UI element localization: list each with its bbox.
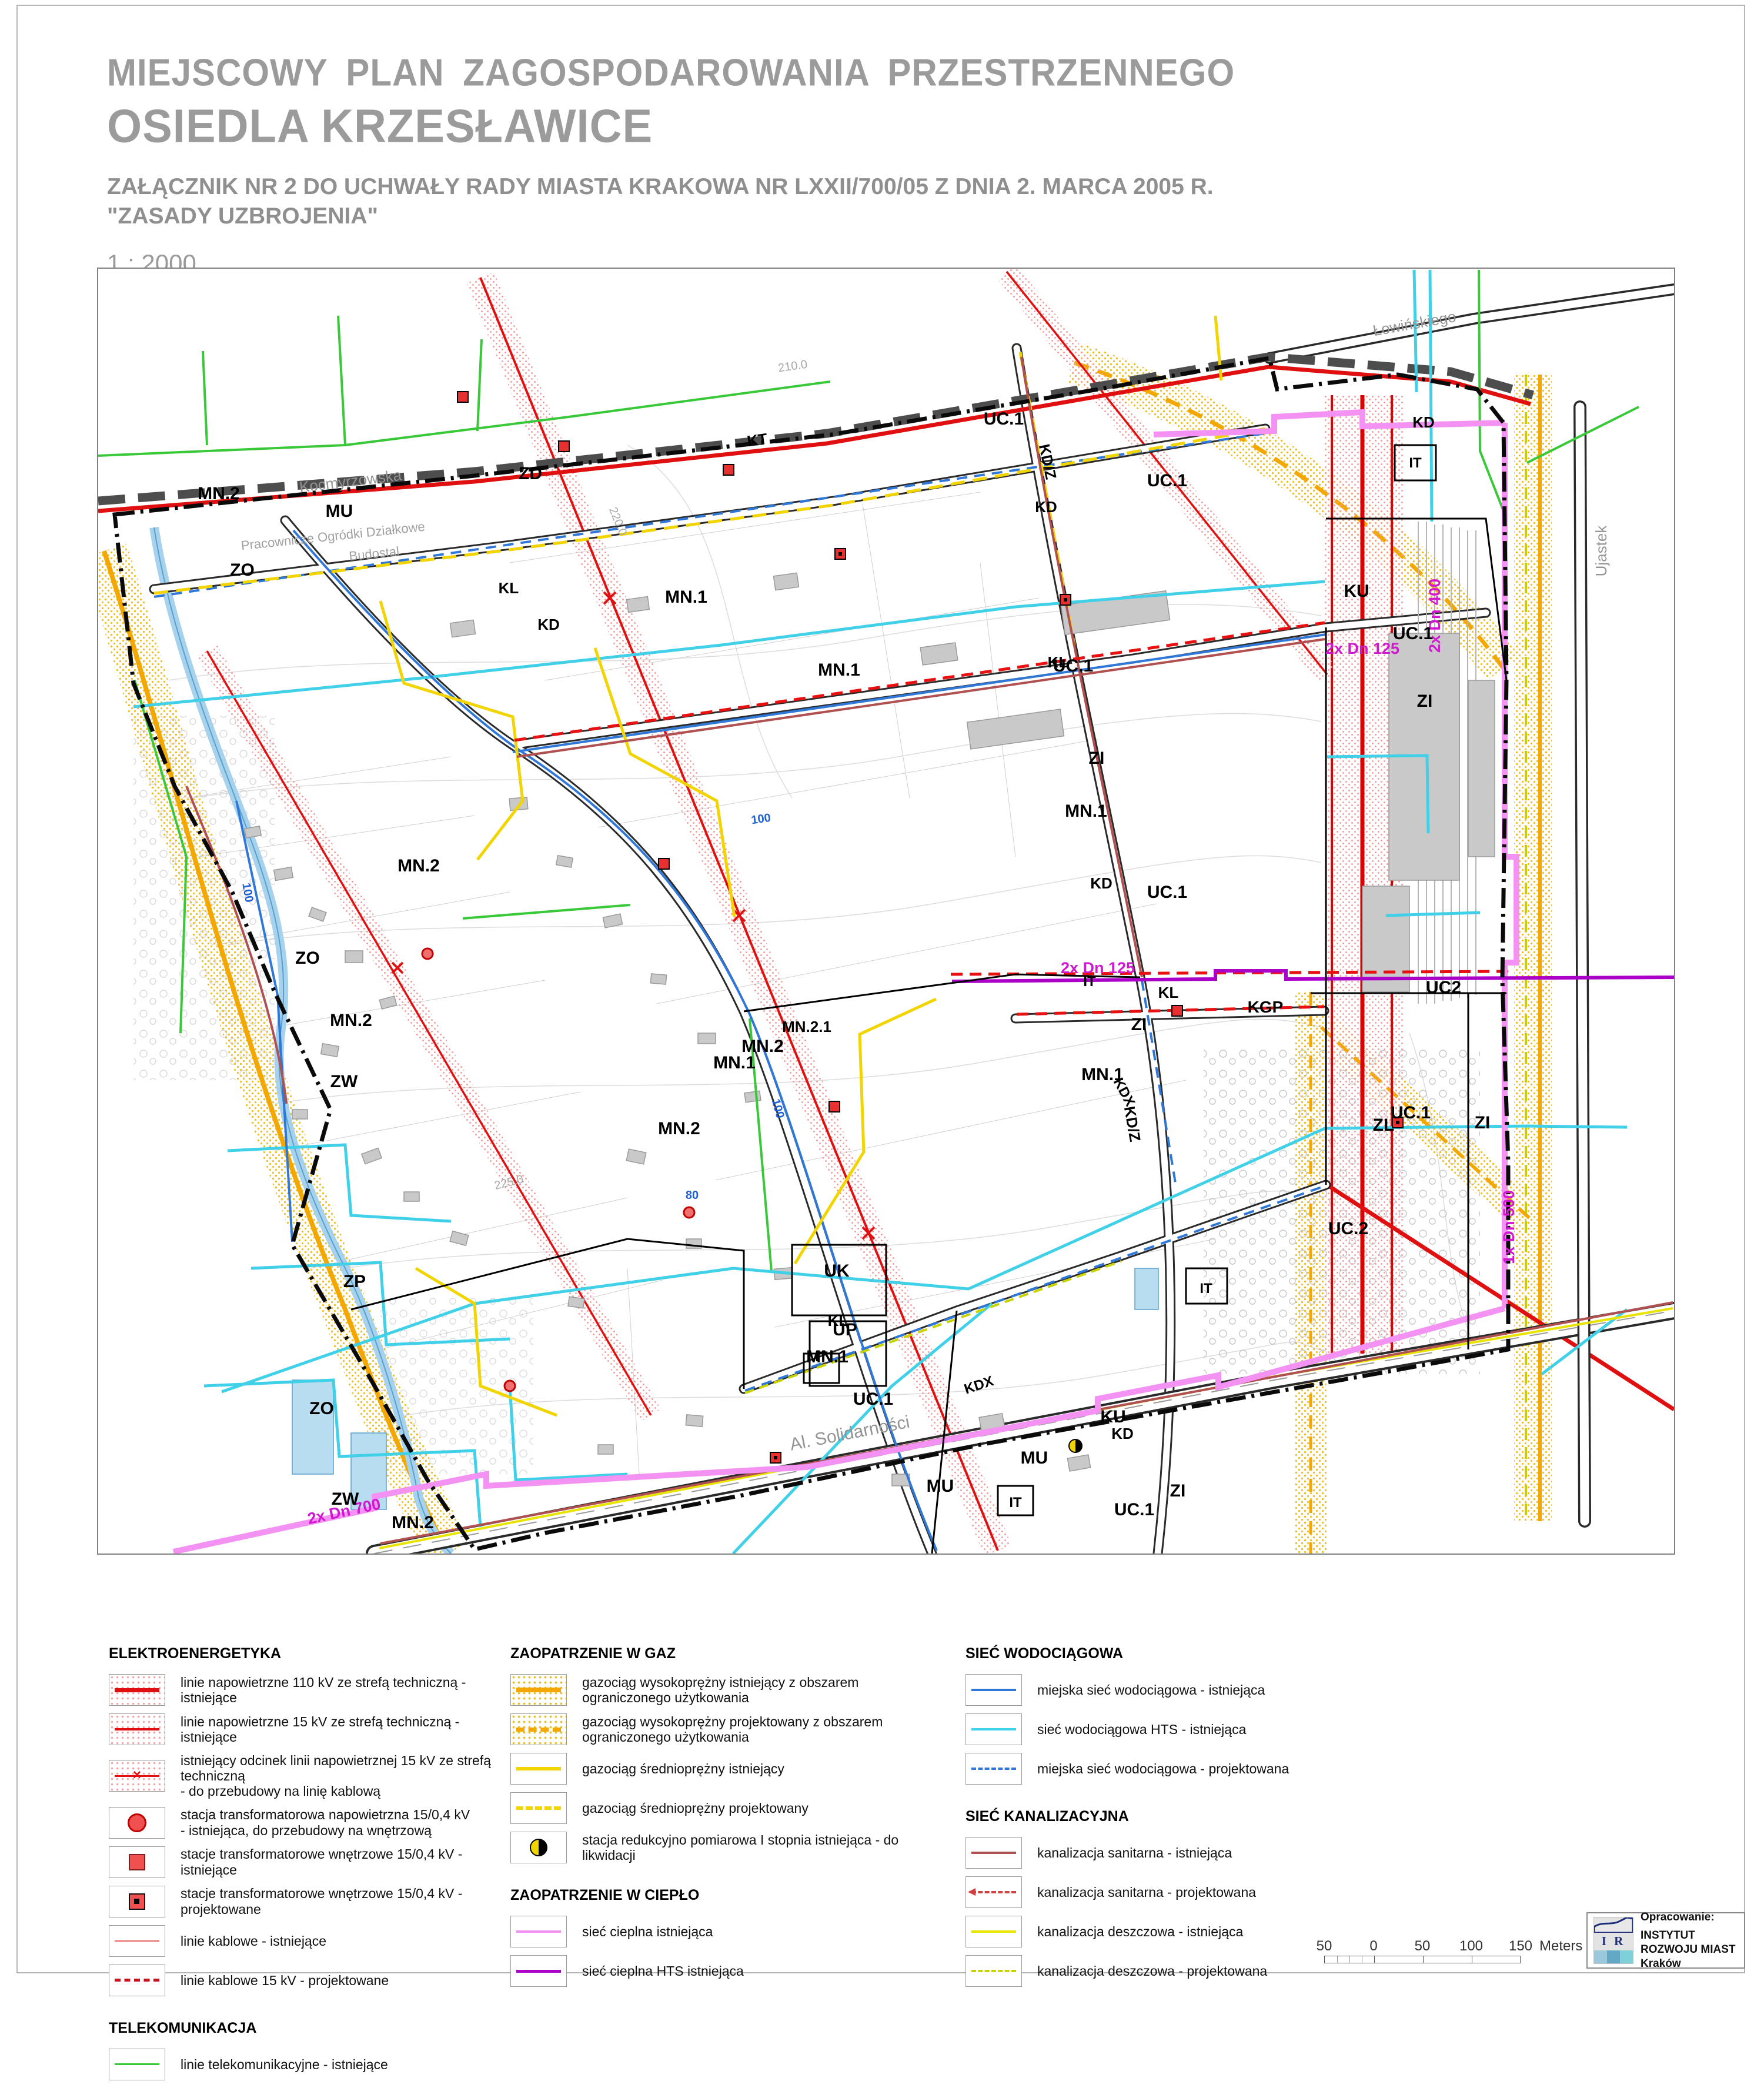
zone-label: UC.1 bbox=[1053, 656, 1093, 676]
plan-subtitle-resolution: ZAŁĄCZNIK NR 2 DO UCHWAŁY RADY MIASTA KR… bbox=[107, 174, 1518, 200]
map-frame: 225.0220.0210.0 Pracownicze Ogródki Dzia… bbox=[97, 268, 1675, 1555]
legend-item: gazociąg średnioprężny projektowany bbox=[510, 1792, 948, 1824]
swatch-sanitary-planned-icon bbox=[965, 1876, 1022, 1908]
flow-label: 80 bbox=[686, 1189, 699, 1202]
swatch-transformer-overhead-icon bbox=[109, 1807, 165, 1839]
pipe-label: 2x Dn 125 bbox=[1061, 959, 1135, 977]
zone-label: KD bbox=[1090, 874, 1112, 892]
legend-item: stacja transformatorowa napowietrzna 15/… bbox=[109, 1807, 497, 1839]
zone-label: UK bbox=[824, 1261, 850, 1281]
pipe-label: 2x Dn 125 bbox=[1325, 640, 1399, 657]
legend-item: gazociąg wysokoprężny projektowany z obs… bbox=[510, 1713, 948, 1745]
legend-section-title: ELEKTROENERGETYKA bbox=[109, 1645, 497, 1662]
scale-tick-label: 50 bbox=[1415, 1938, 1431, 1955]
swatch-transformer-planned-icon bbox=[109, 1886, 165, 1917]
credit-box: I R M Opracowanie: INSTYTUT ROZWOJU MIAS… bbox=[1586, 1912, 1745, 1969]
scale-bar-graphic bbox=[1324, 1956, 1521, 1963]
legend-item: linie kablowe 15 kV - projektowane bbox=[109, 1965, 497, 1996]
zone-label: KDX bbox=[1110, 1075, 1138, 1109]
zone-label: KU bbox=[1344, 582, 1369, 601]
zone-label: MU bbox=[1021, 1448, 1048, 1468]
zone-label: KD bbox=[1412, 413, 1435, 431]
scale-tick-label: 150 bbox=[1509, 1938, 1532, 1955]
swatch-gas-mp-planned-icon bbox=[510, 1792, 567, 1824]
zone-label: MN.1 bbox=[818, 660, 860, 680]
scale-tick-label: 0 bbox=[1369, 1938, 1377, 1955]
zone-label: UC.1 bbox=[1147, 883, 1187, 902]
street-label: Ujastek bbox=[1592, 525, 1610, 577]
zone-label: MN.1 bbox=[713, 1053, 756, 1073]
zone-label: MN.2 bbox=[198, 484, 240, 503]
plan-title-line2: OSIEDLA KRZESŁAWICE bbox=[107, 99, 1518, 153]
legend-column-gas-heat: ZAOPATRZENIE W GAZ gazociąg wysokoprężny… bbox=[510, 1645, 948, 1995]
zone-label: MN.1 bbox=[665, 587, 707, 607]
legend-section-title: TELEKOMUNIKACJA bbox=[109, 2020, 497, 2037]
zone-label: ZI bbox=[1475, 1113, 1491, 1132]
irm-logo-icon: I R M bbox=[1593, 1917, 1633, 1964]
legend-section-title: ZAOPATRZENIE W CIEPŁO bbox=[510, 1887, 948, 1904]
legend-section-title: ZAOPATRZENIE W GAZ bbox=[510, 1645, 948, 1662]
scale-bar: 50 0 50 100 150 Meters bbox=[1324, 1938, 1577, 1963]
gas-reduction-station bbox=[1069, 1439, 1082, 1452]
legend-item: linie napowietrzne 15 kV ze strefą techn… bbox=[109, 1713, 497, 1745]
swatch-transformer-indoor-icon bbox=[109, 1846, 165, 1878]
scale-tick-label: 100 bbox=[1459, 1938, 1483, 1955]
zone-label: KD bbox=[1111, 1425, 1134, 1442]
swatch-storm-planned-icon bbox=[965, 1955, 1022, 1987]
zone-label: MN.2 bbox=[330, 1011, 372, 1030]
zone-label: MN.2 bbox=[658, 1119, 700, 1138]
swatch-telecom-icon bbox=[109, 2049, 165, 2080]
zone-label: IT bbox=[815, 1349, 828, 1365]
zone-label: MU bbox=[326, 502, 353, 521]
zone-label: ZO bbox=[295, 948, 320, 968]
zone-label: UC.1 bbox=[853, 1389, 893, 1409]
credit-text: Opracowanie: INSTYTUT ROZWOJU MIAST Krak… bbox=[1641, 1910, 1738, 1971]
swatch-15kv-line-icon bbox=[109, 1713, 165, 1745]
credit-city: Kraków bbox=[1641, 1957, 1738, 1971]
legend-item: gazociąg wysokoprężny istniejący z obsza… bbox=[510, 1674, 948, 1706]
zone-label: ZI bbox=[1170, 1481, 1186, 1501]
zone-label: MN.2 bbox=[392, 1513, 434, 1532]
swatch-water-planned-icon bbox=[965, 1753, 1022, 1785]
legend-item: linie napowietrzne 110 kV ze strefą tech… bbox=[109, 1674, 497, 1706]
zone-label: UC.2 bbox=[1328, 1219, 1368, 1238]
zone-label: KL bbox=[499, 579, 519, 597]
legend-item: sieć cieplna istniejąca bbox=[510, 1916, 948, 1947]
zone-label: IT bbox=[1009, 1495, 1022, 1511]
swatch-gas-hp-planned-icon bbox=[510, 1713, 567, 1745]
credit-organization: INSTYTUT ROZWOJU MIAST bbox=[1641, 1929, 1738, 1957]
zone-label: MN.1 bbox=[1065, 801, 1107, 821]
zone-label: KDX bbox=[962, 1373, 995, 1397]
zone-label: IT bbox=[1409, 455, 1422, 471]
swatch-heat-hts-icon bbox=[510, 1955, 567, 1987]
scale-bar-labels: 50 0 50 100 150 Meters bbox=[1324, 1938, 1577, 1955]
flow-label: 100 bbox=[750, 811, 771, 827]
legend-item: stacje transformatorowe wnętrzowe 15/0,4… bbox=[109, 1846, 497, 1878]
zone-label: MU bbox=[927, 1476, 954, 1496]
plan-title-line1: MIEJSCOWY PLAN ZAGOSPODAROWANIA PRZESTRZ… bbox=[107, 51, 1518, 95]
swatch-gas-mp-existing-icon bbox=[510, 1753, 567, 1785]
zone-label: UC.1 bbox=[984, 409, 1024, 429]
legend-item: kanalizacja sanitarna - projektowana bbox=[965, 1876, 1377, 1908]
pipe-label: 1x Dn 500 bbox=[1500, 1190, 1518, 1264]
legend-item: kanalizacja deszczowa - projektowana bbox=[965, 1955, 1377, 1987]
zone-label: KD/Z bbox=[1121, 1105, 1144, 1143]
swatch-110kv-line-icon bbox=[109, 1674, 165, 1706]
pond bbox=[1135, 1268, 1158, 1309]
flow-label: 100 bbox=[769, 1097, 787, 1120]
zone-label: ZL bbox=[1373, 1115, 1395, 1135]
zone-label: ZI bbox=[1417, 691, 1433, 711]
swatch-gas-hp-existing-icon bbox=[510, 1674, 567, 1706]
zone-label: KL bbox=[1158, 984, 1179, 1001]
legend-column-electro: ELEKTROENERGETYKA linie napowietrzne 110… bbox=[109, 1645, 497, 2088]
zone-label: KU bbox=[1100, 1407, 1125, 1426]
legend-item: linie telekomunikacyjne - istniejące bbox=[109, 2049, 497, 2080]
area-label-group: Pracownicze Ogródki DziałkoweBudostal bbox=[240, 519, 426, 564]
plan-sheet: { "header": { "title_line1": "MIEJSCOWY … bbox=[0, 0, 1764, 1980]
zone-label: KD bbox=[1035, 498, 1057, 516]
zone-label: IT bbox=[1083, 974, 1096, 990]
zone-label: ZW bbox=[332, 1489, 359, 1509]
swatch-15kv-rebuild-icon bbox=[109, 1760, 165, 1792]
swatch-cable-planned-icon bbox=[109, 1965, 165, 1996]
legend-item: stacje transformatorowe wnętrzowe 15/0,4… bbox=[109, 1886, 497, 1917]
credit-heading: Opracowanie: bbox=[1641, 1910, 1738, 1925]
zone-label: ZP bbox=[343, 1272, 366, 1291]
plan-subtitle-topic: "ZASADY UZBROJENIA" bbox=[107, 203, 1518, 229]
utilities-map: 225.0220.0210.0 Pracownicze Ogródki Dzia… bbox=[98, 269, 1674, 1554]
zone-label: KT bbox=[746, 430, 769, 450]
scale-unit-label: Meters bbox=[1539, 1938, 1582, 1955]
legend-item: stacja redukcyjno pomiarowa I stopnia is… bbox=[510, 1832, 948, 1863]
swatch-gas-reduction-station-icon bbox=[510, 1832, 567, 1863]
pond bbox=[292, 1380, 333, 1474]
legend-column-water-sewer: SIEĆ WODOCIĄGOWA miejska sieć wodociągow… bbox=[965, 1645, 1377, 1995]
scale-tick-label: 50 bbox=[1317, 1938, 1332, 1955]
legend-item: gazociąg średnioprężny istniejący bbox=[510, 1753, 948, 1785]
zone-label: ZI bbox=[1089, 749, 1105, 768]
legend-section-title: SIEĆ WODOCIĄGOWA bbox=[965, 1645, 1377, 1662]
zone-label: UC.1 bbox=[1147, 471, 1187, 490]
zone-label: ZO bbox=[309, 1399, 334, 1418]
zone-label: KD bbox=[537, 616, 560, 633]
legend-item: sieć cieplna HTS istniejąca bbox=[510, 1955, 948, 1987]
legend-section-title: SIEĆ KANALIZACYJNA bbox=[965, 1808, 1377, 1825]
zone-label: ZD bbox=[519, 464, 542, 483]
zone-label: MN.2.1 bbox=[782, 1018, 831, 1035]
zone-label: IT bbox=[1200, 1281, 1212, 1297]
legend-item: istniejący odcinek linii napowietrznej 1… bbox=[109, 1753, 497, 1799]
contour-label: 210.0 bbox=[777, 358, 808, 375]
swatch-water-existing-icon bbox=[965, 1674, 1022, 1706]
zone-label: ZO bbox=[230, 560, 255, 580]
legend-item: kanalizacja deszczowa - istniejąca bbox=[965, 1916, 1377, 1947]
zone-label: UC.1 bbox=[1393, 624, 1433, 643]
legend-item: kanalizacja sanitarna - istniejąca bbox=[965, 1837, 1377, 1869]
legend-item: miejska sieć wodociągowa - istniejąca bbox=[965, 1674, 1377, 1706]
swatch-heat-existing-icon bbox=[510, 1916, 567, 1947]
zone-label: UC2 bbox=[1426, 978, 1461, 997]
zone-label: UC.1 bbox=[1391, 1103, 1431, 1122]
zone-label: UP bbox=[833, 1320, 857, 1339]
title-block: MIEJSCOWY PLAN ZAGOSPODAROWANIA PRZESTRZ… bbox=[107, 51, 1518, 278]
zone-label: ZW bbox=[330, 1072, 358, 1091]
swatch-water-hts-icon bbox=[965, 1713, 1022, 1745]
zone-label: UC.1 bbox=[1114, 1500, 1154, 1519]
swatch-storm-existing-icon bbox=[965, 1916, 1022, 1947]
swatch-cable-existing-icon bbox=[109, 1925, 165, 1957]
legend-item: linie kablowe - istniejące bbox=[109, 1925, 497, 1957]
gas-medium-lines bbox=[380, 316, 1221, 1415]
zone-label: MN.2 bbox=[397, 856, 440, 876]
legend-item: miejska sieć wodociągowa - projektowana bbox=[965, 1753, 1377, 1785]
legend-item: sieć wodociągowa HTS - istniejąca bbox=[965, 1713, 1377, 1745]
zone-label: KGP bbox=[1248, 998, 1284, 1016]
swatch-sanitary-existing-icon bbox=[965, 1837, 1022, 1869]
zone-label: ZI bbox=[1131, 1015, 1147, 1034]
